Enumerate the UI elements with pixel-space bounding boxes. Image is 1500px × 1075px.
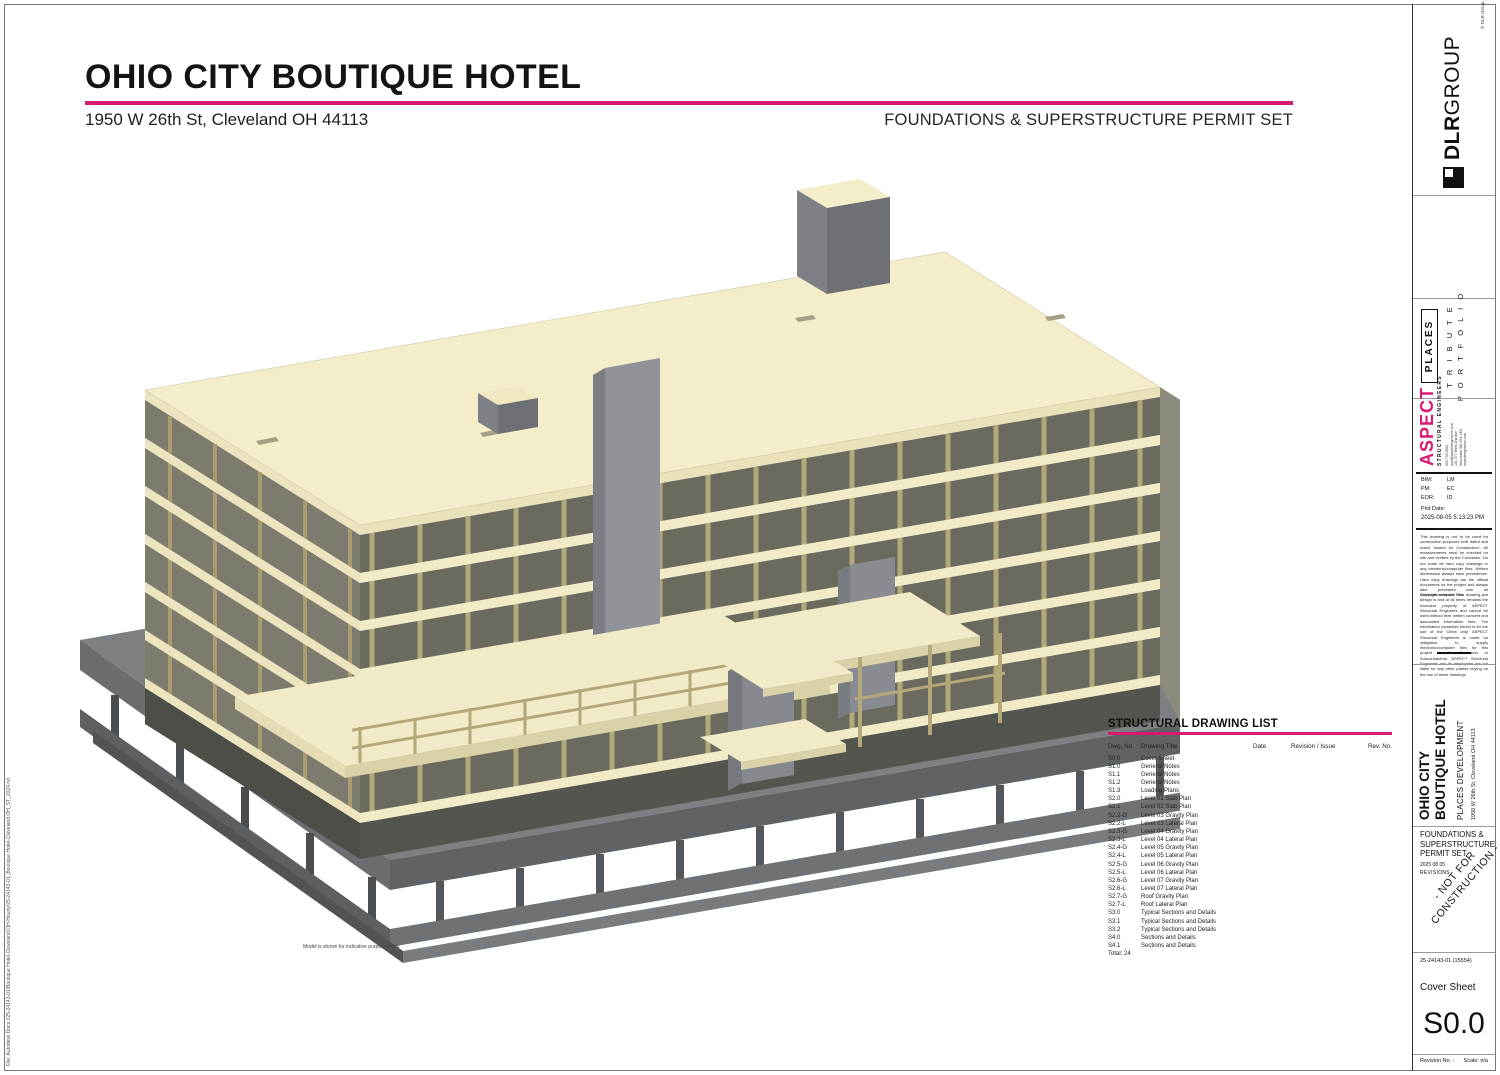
drawing-list-total: Total: 24 xyxy=(1108,951,1392,957)
credit-row: BIM:LM xyxy=(1421,476,1487,485)
divider xyxy=(1416,528,1492,530)
drawing-list-header: Dwg. No. Drawing Title Date Revision / I… xyxy=(1108,743,1392,750)
drawing-list-row: S2.2-LLevel 03 Lateral Plan xyxy=(1108,820,1392,828)
sheet-number: S0.0 xyxy=(1413,1007,1495,1041)
file-path-label: File: Autodesk Docs://25-24143-01/Boutiq… xyxy=(6,736,14,1066)
divider xyxy=(1413,826,1495,827)
drawing-list-row: S1.3Loading Plans xyxy=(1108,787,1392,795)
drawing-list-row: S2.0Level 01 Slab Plan xyxy=(1108,795,1392,803)
divider xyxy=(1437,652,1471,654)
divider xyxy=(1413,1054,1495,1055)
project-client: PLACES DEVELOPMENT xyxy=(1456,666,1465,820)
project-address: 1950 W 26th St, Cleveland OH 44113 xyxy=(85,110,368,130)
drawing-list-row: S1.2General Notes xyxy=(1108,779,1392,787)
revision-scale-row: Revision No. : Scale: n/a xyxy=(1413,1058,1495,1064)
aspect-contact: 604 734 0522 mail@aspectengineers.com 10… xyxy=(1445,400,1468,466)
divider xyxy=(1413,664,1495,665)
dlr-logo-icon xyxy=(1443,167,1464,188)
credits-block: BIM:LMPM:ECEOR:ID xyxy=(1413,476,1495,503)
drawing-list-row: S0.0Cover Sheet xyxy=(1108,755,1392,763)
drawing-list-row: S1.0General Notes xyxy=(1108,763,1392,771)
model-note: Model is shown for indicative purposes o… xyxy=(303,944,400,950)
firm-logo: DLRGROUP © DLR Group xyxy=(1421,12,1485,188)
engineer-logo-section: ASPECT STRUCTURAL ENGINEERS 604 734 0522… xyxy=(1418,400,1482,466)
drawing-list-row: S2.6-LLevel 07 Lateral Plan xyxy=(1108,885,1392,893)
drawing-list-row: S2.5-LLevel 06 Lateral Plan xyxy=(1108,869,1392,877)
credit-row: PM:EC xyxy=(1421,485,1487,494)
drawing-list: STRUCTURAL DRAWING LIST Dwg. No. Drawing… xyxy=(1108,718,1392,957)
drawing-list-row: S2.2-GLevel 03 Gravity Plan xyxy=(1108,812,1392,820)
drawing-list-row: S4.1Sections and Details xyxy=(1108,942,1392,950)
divider xyxy=(1413,195,1495,196)
page-title: OHIO CITY BOUTIQUE HOTEL xyxy=(85,58,581,97)
firm-copyright: © DLR Group xyxy=(1480,1,1485,28)
revision-label: Revision No. : xyxy=(1420,1058,1454,1064)
tribute-portfolio-label: T R I B U T E P O R T F O L I O xyxy=(1444,291,1467,401)
drawing-list-row: S2.5-GLevel 06 Gravity Plan xyxy=(1108,861,1392,869)
drawing-list-row: S3.0Typical Sections and Details xyxy=(1108,909,1392,917)
project-number: 25-24143-01 (15554) xyxy=(1420,958,1472,964)
subtitle-row: 1950 W 26th St, Cleveland OH 44113 FOUND… xyxy=(85,110,1293,130)
drawing-list-row: S1.1General Notes xyxy=(1108,771,1392,779)
drawing-list-row: S2.6-GLevel 07 Gravity Plan xyxy=(1108,877,1392,885)
drawing-list-title: STRUCTURAL DRAWING LIST xyxy=(1108,718,1392,730)
structural-model-3d xyxy=(60,165,1180,975)
divider xyxy=(1416,472,1492,474)
title-block: DLRGROUP © DLR Group PLACES T R I B U T … xyxy=(1413,4,1495,1071)
drawing-list-row: S2.3-GLevel 04 Gravity Plan xyxy=(1108,828,1392,836)
project-name: OHIO CITY BOUTIQUE HOTEL xyxy=(1417,666,1449,820)
drawing-list-row: S3.2Typical Sections and Details xyxy=(1108,926,1392,934)
permit-set-label: FOUNDATIONS & SUPERSTRUCTURE PERMIT SET xyxy=(884,111,1293,130)
east-facade xyxy=(1160,387,1180,725)
credit-row: EOR:ID xyxy=(1421,494,1487,503)
places-badge: PLACES xyxy=(1421,309,1438,384)
drawing-list-row: S4.0Sections and Details xyxy=(1108,934,1392,942)
drawing-list-row: S2.4-LLevel 05 Lateral Plan xyxy=(1108,852,1392,860)
drawing-list-row: S3.1Typical Sections and Details xyxy=(1108,918,1392,926)
plot-date-label: Plot Date: xyxy=(1421,506,1487,512)
scale-label: Scale: n/a xyxy=(1464,1058,1488,1064)
drawing-list-rows: S0.0Cover SheetS1.0General NotesS1.1Gene… xyxy=(1108,755,1392,951)
cover-sheet: OHIO CITY BOUTIQUE HOTEL 1950 W 26th St,… xyxy=(0,0,1500,1075)
firm-wordmark: DLRGROUP xyxy=(1441,36,1465,160)
aspect-logo: ASPECT xyxy=(1418,400,1436,466)
drawing-list-row: S2.7-GRoof Gravity Plan xyxy=(1108,893,1392,901)
client-brand-section: PLACES T R I B U T E P O R T F O L I O xyxy=(1421,300,1487,392)
project-name-block: OHIO CITY BOUTIQUE HOTEL PLACES DEVELOPM… xyxy=(1417,666,1491,820)
project-address-small: 1950 W 26th St, Cleveland OH 44113 xyxy=(1471,666,1477,820)
aspect-tagline: STRUCTURAL ENGINEERS xyxy=(1437,400,1443,466)
plot-date-block: Plot Date: 2025-08-05 5:13:23 PM xyxy=(1413,506,1495,521)
drawing-list-row: S2.7-LRoof Lateral Plan xyxy=(1108,901,1392,909)
drawing-list-row: S2.4-GLevel 05 Gravity Plan xyxy=(1108,844,1392,852)
plot-date-value: 2025-08-05 5:13:23 PM xyxy=(1421,515,1487,521)
drawing-list-rule xyxy=(1108,732,1392,735)
rooftop-box-small xyxy=(478,386,538,434)
title-accent-rule xyxy=(85,101,1293,105)
divider xyxy=(1413,952,1495,953)
drawing-list-row: S2.1Level 02 Slab Plan xyxy=(1108,803,1392,811)
disclaimer-1: This drawing is not to be used for const… xyxy=(1413,534,1495,598)
drawing-list-row: S2.3-LLevel 04 Lateral Plan xyxy=(1108,836,1392,844)
sheet-title: Cover Sheet xyxy=(1420,982,1476,993)
rooftop-mechanical-box xyxy=(797,179,890,294)
